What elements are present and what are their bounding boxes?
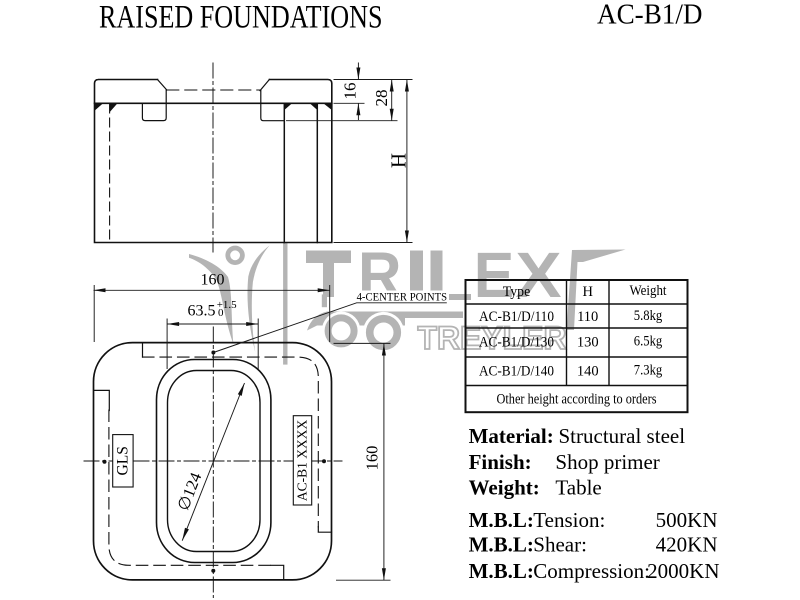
svg-text:M.B.L:: M.B.L: <box>469 533 534 557</box>
svg-text:Structural steel: Structural steel <box>559 424 686 448</box>
svg-text:28: 28 <box>372 90 391 107</box>
svg-text:Type: Type <box>503 284 531 300</box>
svg-text:7.3kg: 7.3kg <box>634 363 663 379</box>
svg-text:X: X <box>515 239 562 311</box>
svg-text:Material:: Material: <box>469 424 554 448</box>
svg-text:H: H <box>387 153 411 168</box>
svg-text:Table: Table <box>555 476 601 500</box>
svg-text:Weight:: Weight: <box>469 476 540 500</box>
svg-text:AC-B1/D/110: AC-B1/D/110 <box>479 309 554 325</box>
svg-text:500KN: 500KN <box>656 508 718 532</box>
svg-text:AC-B1/D: AC-B1/D <box>597 0 703 31</box>
svg-text:AC-B1/D/130: AC-B1/D/130 <box>479 335 554 351</box>
svg-text:E: E <box>474 239 515 311</box>
svg-text:GLS: GLS <box>115 446 132 475</box>
svg-text:140: 140 <box>577 364 599 380</box>
svg-text:M.B.L:: M.B.L: <box>469 559 534 583</box>
svg-text:4-CENTER POINTS: 4-CENTER POINTS <box>357 289 448 303</box>
svg-text:130: 130 <box>577 335 599 351</box>
svg-text:Shop primer: Shop primer <box>555 450 659 474</box>
svg-text:H: H <box>582 284 593 300</box>
svg-text:110: 110 <box>577 309 598 325</box>
svg-text:M.B.L:: M.B.L: <box>469 508 534 532</box>
svg-text:∅124: ∅124 <box>173 470 205 513</box>
svg-text:Shear:: Shear: <box>533 533 587 557</box>
svg-text:AC-B1/D/140: AC-B1/D/140 <box>479 364 554 380</box>
svg-text:Compression:: Compression: <box>533 559 650 583</box>
svg-text:63.5: 63.5 <box>188 302 216 319</box>
svg-text:2000KN: 2000KN <box>647 559 719 583</box>
svg-text:420KN: 420KN <box>656 533 718 557</box>
svg-text:16: 16 <box>341 83 360 100</box>
svg-text:RAISED FOUNDATIONS: RAISED FOUNDATIONS <box>99 0 383 36</box>
svg-text:160: 160 <box>363 446 382 471</box>
svg-text:Finish:: Finish: <box>469 450 532 474</box>
svg-text:Weight: Weight <box>630 283 667 299</box>
svg-text:Tension:: Tension: <box>533 508 605 532</box>
svg-text:6.5kg: 6.5kg <box>634 334 663 350</box>
svg-text:Other height according to orde: Other height according to orders <box>497 392 657 408</box>
svg-text:5.8kg: 5.8kg <box>634 308 663 324</box>
svg-text:160: 160 <box>201 272 225 289</box>
svg-text:AC-B1 XXXX: AC-B1 XXXX <box>295 419 310 501</box>
svg-text:0: 0 <box>218 307 224 319</box>
